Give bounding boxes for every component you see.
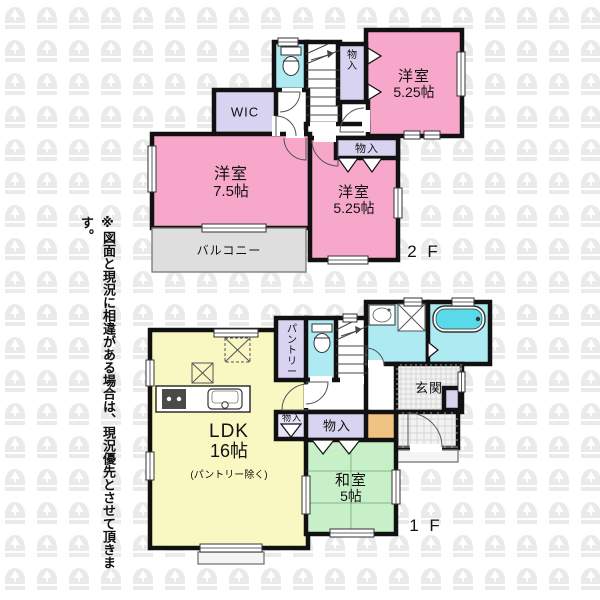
closet-1f-small-label: 物入: [282, 412, 302, 423]
watermark-emblem-icon: [5, 238, 25, 260]
watermark-emblem-icon: [37, 139, 57, 161]
watermark-emblem-icon: [517, 436, 537, 458]
watermark-emblem-icon: [101, 7, 121, 29]
watermark-emblem-icon: [517, 271, 537, 293]
watermark-emblem-icon: [517, 73, 537, 95]
watermark-emblem-icon: [5, 535, 25, 557]
watermark-emblem-icon: [549, 73, 569, 95]
watermark-emblem-icon: [549, 106, 569, 128]
watermark-emblem-icon: [517, 106, 537, 128]
watermark-emblem-icon: [549, 271, 569, 293]
watermark-emblem-icon: [37, 7, 57, 29]
watermark-emblem-icon: [165, 73, 185, 95]
watermark-emblem-icon: [421, 7, 441, 29]
watermark-emblem-icon: [485, 106, 505, 128]
watermark-emblem-icon: [581, 7, 600, 29]
window: [146, 360, 154, 386]
watermark-emblem-icon: [325, 271, 345, 293]
watermark-emblem-icon: [581, 106, 600, 128]
watermark-emblem-icon: [485, 172, 505, 194]
watermark-emblem-icon: [229, 271, 249, 293]
watermark-emblem-icon: [69, 436, 89, 458]
watermark-emblem-icon: [37, 535, 57, 557]
watermark-emblem-icon: [517, 403, 537, 425]
watermark-emblem-icon: [581, 337, 600, 359]
watermark-emblem-icon: [133, 7, 153, 29]
watermark-emblem-icon: [197, 271, 217, 293]
watermark-emblem-icon: [37, 271, 57, 293]
bedroom-75-size-label: 7.5帖: [213, 183, 249, 200]
watermark-emblem-icon: [357, 7, 377, 29]
watermark-emblem-icon: [485, 436, 505, 458]
room-hall-1f-front: [366, 364, 398, 414]
watermark-emblem-icon: [421, 205, 441, 227]
watermark-emblem-icon: [485, 502, 505, 524]
watermark-emblem-icon: [453, 7, 473, 29]
watermark-emblem-icon: [581, 502, 600, 524]
watermark-emblem-icon: [5, 172, 25, 194]
watermark-emblem-icon: [101, 106, 121, 128]
window: [202, 224, 266, 232]
watermark-emblem-icon: [549, 370, 569, 392]
watermark-emblem-icon: [229, 304, 249, 326]
kitchen-counter-icon: [156, 386, 250, 412]
closet-2f-top-label: 物入: [347, 48, 357, 72]
watermark-emblem-icon: [133, 40, 153, 62]
watermark-emblem-icon: [5, 436, 25, 458]
watermark-emblem-icon: [517, 502, 537, 524]
closet-2f-mid-label: 物入: [355, 141, 379, 155]
watermark-emblem-icon: [453, 502, 473, 524]
watermark-emblem-icon: [69, 502, 89, 524]
watermark-emblem-icon: [229, 568, 249, 590]
watermark-emblem-icon: [165, 7, 185, 29]
watermark-emblem-icon: [229, 40, 249, 62]
watermark-emblem-icon: [485, 139, 505, 161]
watermark-emblem-icon: [485, 40, 505, 62]
bedroom-525-top-label: 洋室: [398, 68, 430, 85]
watermark-emblem-icon: [69, 7, 89, 29]
watermark-emblem-icon: [69, 40, 89, 62]
watermark-emblem-icon: [37, 337, 57, 359]
watermark-emblem-icon: [549, 436, 569, 458]
watermark-emblem-icon: [485, 403, 505, 425]
watermark-emblem-icon: [165, 106, 185, 128]
watermark-emblem-icon: [549, 403, 569, 425]
watermark-emblem-icon: [165, 40, 185, 62]
watermark-emblem-icon: [517, 304, 537, 326]
watermark-emblem-icon: [549, 304, 569, 326]
watermark-emblem-icon: [389, 7, 409, 29]
watermark-emblem-icon: [485, 535, 505, 557]
watermark-emblem-icon: [37, 238, 57, 260]
watermark-emblem-icon: [453, 469, 473, 491]
watermark-emblem-icon: [5, 106, 25, 128]
watermark-emblem-icon: [37, 568, 57, 590]
room-ldk-terrace: [198, 552, 264, 564]
watermark-emblem-icon: [5, 304, 25, 326]
watermark-emblem-icon: [485, 469, 505, 491]
watermark-emblem-icon: [549, 7, 569, 29]
watermark-emblem-icon: [581, 40, 600, 62]
watermark-emblem-icon: [421, 139, 441, 161]
watermark-emblem-icon: [261, 7, 281, 29]
stove-icon: [162, 389, 186, 409]
watermark-emblem-icon: [581, 304, 600, 326]
bedroom-525-mid-label: 洋室: [338, 184, 370, 201]
washitsu-label: 和室: [335, 472, 367, 489]
watermark-emblem-icon: [581, 370, 600, 392]
room-doma: [396, 412, 458, 448]
watermark-emblem-icon: [549, 469, 569, 491]
watermark-emblem-icon: [133, 568, 153, 590]
watermark-emblem-icon: [485, 238, 505, 260]
watermark-emblem-icon: [165, 304, 185, 326]
watermark-emblem-icon: [5, 73, 25, 95]
floor-label-1f: 1 F: [409, 516, 443, 535]
watermark-emblem-icon: [581, 469, 600, 491]
watermark-emblem-icon: [389, 568, 409, 590]
watermark-emblem-icon: [453, 139, 473, 161]
watermark-emblem-icon: [69, 337, 89, 359]
watermark-emblem-icon: [37, 304, 57, 326]
watermark-emblem-icon: [517, 370, 537, 392]
watermark-emblem-icon: [581, 535, 600, 557]
watermark-emblem-icon: [69, 139, 89, 161]
watermark-emblem-icon: [261, 568, 281, 590]
window: [148, 146, 156, 192]
watermark-emblem-icon: [549, 568, 569, 590]
watermark-emblem-icon: [389, 535, 409, 557]
watermark-emblem-icon: [421, 271, 441, 293]
watermark-emblem-icon: [101, 40, 121, 62]
watermark-emblem-icon: [549, 139, 569, 161]
watermark-emblem-icon: [549, 238, 569, 260]
watermark-emblem-icon: [5, 271, 25, 293]
floor-label-2f: 2 F: [407, 242, 441, 261]
washitsu-size-label: 5帖: [340, 488, 362, 504]
watermark-emblem-icon: [69, 535, 89, 557]
watermark-emblem-icon: [453, 238, 473, 260]
floorplan-drawing: 洋室5.25帖物入WIC洋室7.5帖洋室5.25帖物入バルコニーLDK16帖(パ…: [0, 0, 600, 600]
watermark-emblem-icon: [421, 469, 441, 491]
window: [392, 470, 400, 504]
watermark-emblem-icon: [581, 568, 600, 590]
window: [214, 329, 258, 337]
watermark-emblem-icon: [581, 139, 600, 161]
watermark-emblem-icon: [485, 568, 505, 590]
watermark-emblem-icon: [485, 73, 505, 95]
genkan-label: 玄関: [415, 381, 443, 396]
disclaimer-note: ※図面と現況に相違がある場合は、現況優先とさせて頂きます。: [97, 216, 119, 588]
watermark-emblem-icon: [133, 106, 153, 128]
watermark-emblem-icon: [581, 436, 600, 458]
watermark-emblem-icon: [325, 535, 345, 557]
ldk-label: LDK: [209, 421, 249, 442]
watermark-emblem-icon: [101, 172, 121, 194]
bedroom-525-mid-size-label: 5.25帖: [333, 200, 374, 216]
bedroom-525-top-size-label: 5.25帖: [393, 84, 434, 100]
watermark-emblem-icon: [485, 271, 505, 293]
watermark-emblem-icon: [517, 139, 537, 161]
watermark-emblem-icon: [37, 40, 57, 62]
watermark-emblem-icon: [37, 73, 57, 95]
window: [330, 529, 374, 537]
watermark-emblem-icon: [133, 304, 153, 326]
watermark-emblem-icon: [581, 271, 600, 293]
watermark-emblem-icon: [197, 40, 217, 62]
watermark-emblem-icon: [517, 568, 537, 590]
watermark-emblem-icon: [357, 271, 377, 293]
watermark-emblem-icon: [293, 568, 313, 590]
watermark-emblem-icon: [37, 436, 57, 458]
watermark-emblem-icon: [5, 568, 25, 590]
door-opening: [410, 444, 442, 452]
ldk-size-label: 16帖: [210, 441, 248, 461]
watermark-emblem-icon: [69, 271, 89, 293]
watermark-emblem-icon: [229, 7, 249, 29]
watermark-emblem-icon: [549, 172, 569, 194]
watermark-emblem-icon: [165, 568, 185, 590]
watermark-emblem-icon: [517, 205, 537, 227]
watermark-emblem-icon: [69, 568, 89, 590]
watermark-emblem-icon: [5, 403, 25, 425]
bedroom-75-label: 洋室: [214, 165, 248, 183]
watermark-emblem-icon: [69, 403, 89, 425]
door-opening: [310, 376, 332, 384]
watermark-emblem-icon: [581, 205, 600, 227]
watermark-emblem-icon: [69, 73, 89, 95]
window: [343, 314, 357, 322]
watermark-emblem-icon: [293, 7, 313, 29]
floorplan-canvas: 洋室5.25帖物入WIC洋室7.5帖洋室5.25帖物入バルコニーLDK16帖(パ…: [0, 0, 600, 600]
window: [404, 131, 420, 139]
watermark-emblem-icon: [133, 271, 153, 293]
window: [302, 476, 310, 514]
watermark-emblem-icon: [517, 40, 537, 62]
window: [200, 544, 262, 552]
watermark-emblem-icon: [5, 205, 25, 227]
watermark-emblem-icon: [581, 238, 600, 260]
watermark-emblem-icon: [517, 172, 537, 194]
watermark-emblem-icon: [549, 205, 569, 227]
watermark-emblem-icon: [549, 337, 569, 359]
watermark-emblem-icon: [37, 205, 57, 227]
window: [424, 131, 440, 139]
watermark-emblem-icon: [5, 469, 25, 491]
watermark-emblem-icon: [549, 535, 569, 557]
room-tokonoma: [366, 412, 396, 441]
watermark-emblem-icon: [165, 271, 185, 293]
watermark-emblem-icon: [517, 535, 537, 557]
washing-machine-icon: [398, 304, 425, 331]
door-opening: [340, 376, 364, 384]
watermark-emblem-icon: [5, 7, 25, 29]
watermark-emblem-icon: [517, 7, 537, 29]
watermark-emblem-icon: [69, 172, 89, 194]
watermark-emblem-icon: [5, 502, 25, 524]
watermark-emblem-icon: [485, 370, 505, 392]
watermark-emblem-icon: [517, 469, 537, 491]
watermark-emblem-icon: [581, 73, 600, 95]
window: [328, 256, 368, 264]
pantry-label: パントリー: [287, 323, 297, 378]
toilet-icon: [312, 324, 332, 353]
door-opening: [362, 110, 370, 132]
watermark-emblem-icon: [293, 271, 313, 293]
watermark-emblem-icon: [197, 304, 217, 326]
watermark-emblem-icon: [37, 403, 57, 425]
washbasin-icon: [369, 305, 395, 325]
watermark-emblem-icon: [69, 106, 89, 128]
watermark-emblem-icon: [517, 337, 537, 359]
watermark-emblem-icon: [37, 370, 57, 392]
ldk-note-label: (パントリー除く): [190, 468, 267, 481]
watermark-emblem-icon: [549, 502, 569, 524]
watermark-emblem-icon: [133, 73, 153, 95]
closet-1f-label: 物入: [323, 419, 351, 434]
watermark-emblem-icon: [453, 535, 473, 557]
watermark-emblem-icon: [5, 139, 25, 161]
window: [404, 298, 422, 306]
watermark-emblem-icon: [69, 469, 89, 491]
watermark-emblem-icon: [325, 7, 345, 29]
watermark-emblem-icon: [453, 271, 473, 293]
watermark-emblem-icon: [37, 502, 57, 524]
watermark-emblem-icon: [37, 106, 57, 128]
watermark-emblem-icon: [101, 73, 121, 95]
watermark-emblem-icon: [549, 40, 569, 62]
watermark-emblem-icon: [5, 40, 25, 62]
watermark-emblem-icon: [261, 271, 281, 293]
watermark-emblem-icon: [5, 370, 25, 392]
watermark-emblem-icon: [325, 568, 345, 590]
watermark-emblem-icon: [421, 172, 441, 194]
window: [458, 372, 465, 392]
watermark-emblem-icon: [581, 403, 600, 425]
door-opening: [310, 122, 336, 130]
door-opening: [314, 134, 336, 142]
wic-label: WIC: [231, 105, 259, 120]
watermark-emblem-icon: [581, 172, 600, 194]
watermark-emblem-icon: [453, 205, 473, 227]
window: [394, 188, 402, 218]
watermark-emblem-icon: [69, 370, 89, 392]
bathtub-icon: [433, 306, 485, 332]
toilet-icon: [281, 47, 301, 76]
watermark-emblem-icon: [421, 568, 441, 590]
window: [278, 38, 298, 46]
watermark-emblem-icon: [453, 568, 473, 590]
watermark-emblem-icon: [485, 205, 505, 227]
room-stairs-2f: [306, 42, 340, 126]
watermark-emblem-icon: [485, 7, 505, 29]
watermark-emblem-icon: [453, 172, 473, 194]
balcony-label: バルコニー: [197, 243, 262, 257]
watermark-emblem-icon: [5, 337, 25, 359]
window: [457, 52, 465, 96]
window: [452, 298, 474, 306]
watermark-emblem-icon: [421, 535, 441, 557]
watermark-emblem-icon: [357, 535, 377, 557]
watermark-emblem-icon: [197, 7, 217, 29]
window: [146, 452, 154, 480]
watermark-emblem-icon: [389, 271, 409, 293]
watermark-emblem-icon: [69, 304, 89, 326]
watermark-emblem-icon: [517, 238, 537, 260]
watermark-emblem-icon: [133, 238, 153, 260]
watermark-emblem-icon: [101, 139, 121, 161]
watermark-emblem-icon: [197, 568, 217, 590]
door-opening: [368, 360, 384, 368]
watermark-emblem-icon: [357, 568, 377, 590]
watermark-emblem-icon: [37, 469, 57, 491]
watermark-emblem-icon: [37, 172, 57, 194]
